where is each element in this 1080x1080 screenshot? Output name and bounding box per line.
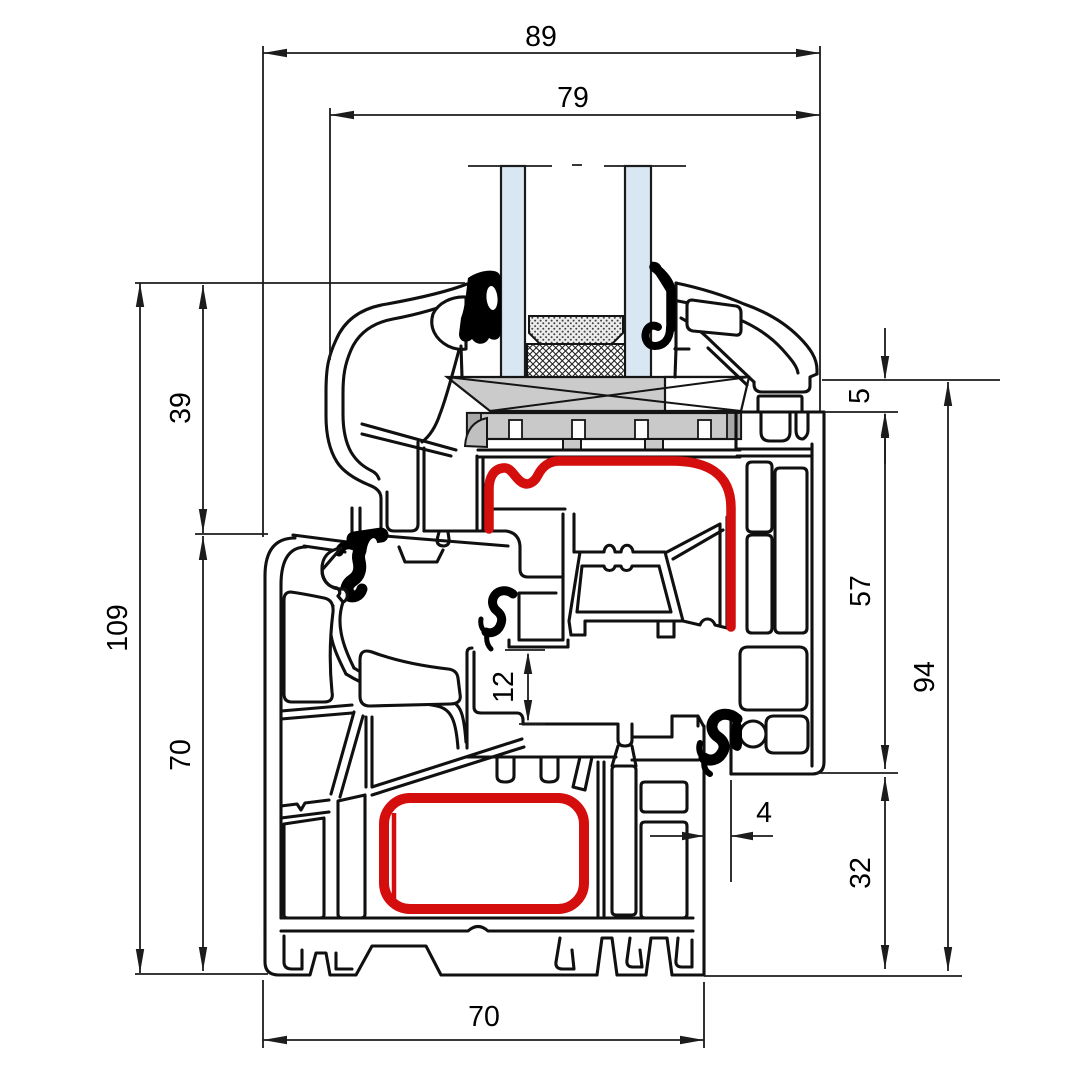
svg-text:109: 109 [102,604,134,652]
svg-text:12: 12 [488,671,520,703]
svg-text:94: 94 [909,661,941,693]
svg-text:4: 4 [756,797,772,829]
svg-text:79: 79 [557,82,589,114]
svg-text:70: 70 [468,1001,500,1033]
svg-text:57: 57 [845,575,877,607]
svg-text:89: 89 [525,21,557,53]
svg-text:5: 5 [844,388,876,404]
svg-text:32: 32 [845,857,877,889]
svg-text:70: 70 [165,739,197,771]
svg-text:39: 39 [165,392,197,424]
